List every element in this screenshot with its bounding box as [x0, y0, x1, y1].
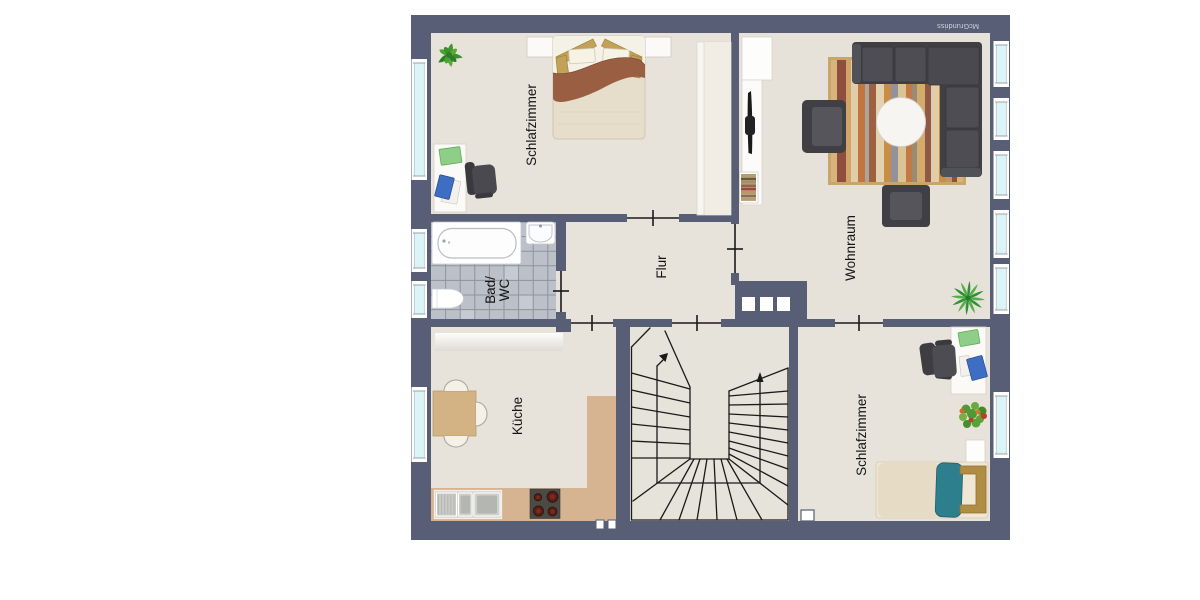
- svg-text:Bad/: Bad/: [483, 276, 498, 304]
- svg-text:Schlafzimmer: Schlafzimmer: [524, 84, 539, 166]
- svg-text:Küche: Küche: [510, 397, 525, 435]
- svg-text:Schlafzimmer: Schlafzimmer: [854, 394, 869, 476]
- svg-text:Wohnraum: Wohnraum: [843, 215, 858, 281]
- svg-text:Flur: Flur: [654, 255, 669, 279]
- svg-text:WC: WC: [497, 279, 512, 302]
- svg-text:McGrundriss: McGrundriss: [937, 22, 979, 31]
